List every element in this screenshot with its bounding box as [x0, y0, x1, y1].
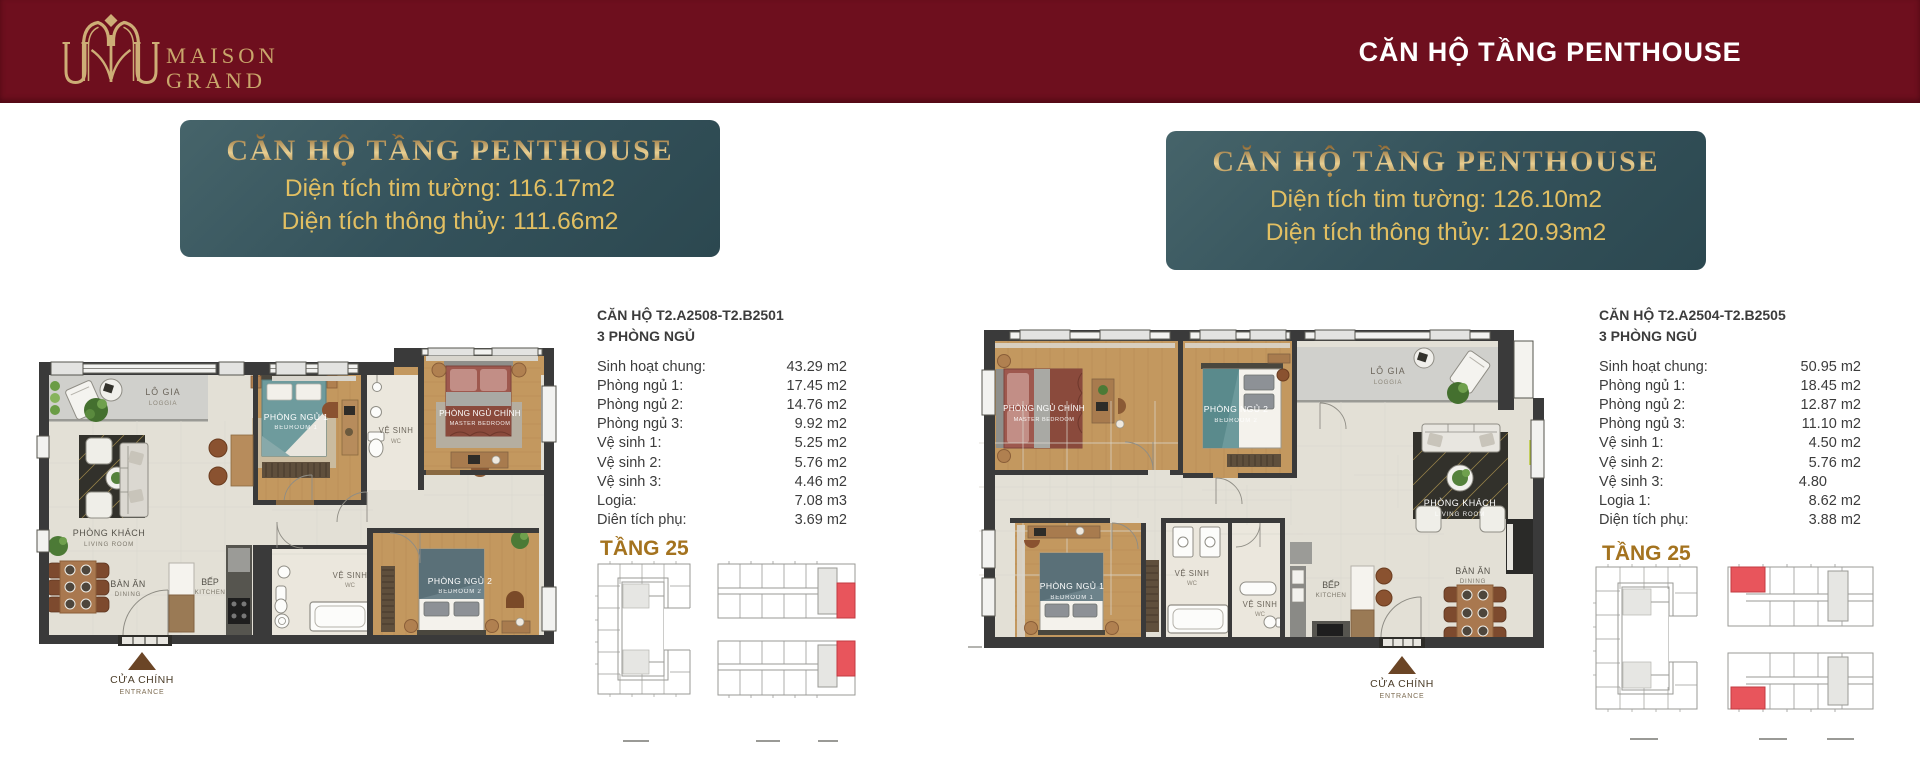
svg-text:CỬA CHÍNH: CỬA CHÍNH: [110, 673, 174, 686]
svg-text:LÔ GIA: LÔ GIA: [145, 387, 180, 397]
svg-text:ENTRANCE: ENTRANCE: [1380, 693, 1425, 700]
svg-text:CỬA CHÍNH: CỬA CHÍNH: [1370, 677, 1434, 690]
svg-text:KITCHEN: KITCHEN: [1316, 592, 1347, 599]
svg-text:PHÒNG NGỦ 2: PHÒNG NGỦ 2: [1204, 403, 1269, 414]
svg-text:ENTRANCE: ENTRANCE: [120, 689, 165, 696]
svg-text:PHÒNG NGỦ CHÍNH: PHÒNG NGỦ CHÍNH: [1003, 402, 1085, 413]
svg-text:BẾP: BẾP: [1322, 580, 1340, 590]
svg-text:DINING: DINING: [115, 591, 141, 598]
svg-text:PHÒNG NGỦ CHÍNH: PHÒNG NGỦ CHÍNH: [439, 407, 521, 418]
svg-text:VỆ SINH: VỆ SINH: [1175, 569, 1210, 578]
svg-text:WC: WC: [345, 583, 356, 589]
svg-text:BEDROOM 2: BEDROOM 2: [438, 589, 481, 595]
svg-text:BEDROOM 2: BEDROOM 2: [1214, 418, 1257, 424]
svg-text:VỆ SINH: VỆ SINH: [379, 426, 414, 435]
svg-text:PHÒNG NGỦ 1: PHÒNG NGỦ 1: [264, 411, 329, 422]
svg-text:LIVING ROOM: LIVING ROOM: [84, 541, 134, 548]
svg-text:VỆ SINH: VỆ SINH: [1243, 600, 1278, 609]
svg-text:MASTER BEDROOM: MASTER BEDROOM: [450, 421, 511, 427]
svg-text:DINING: DINING: [1460, 578, 1486, 585]
svg-text:BẾP: BẾP: [201, 577, 219, 587]
svg-text:BÀN ĂN: BÀN ĂN: [1455, 566, 1490, 576]
svg-text:LOGGIA: LOGGIA: [1374, 379, 1403, 386]
svg-text:PHÒNG NGỦ 2: PHÒNG NGỦ 2: [428, 575, 493, 586]
svg-text:KITCHEN: KITCHEN: [195, 589, 226, 596]
svg-text:BEDROOM 1: BEDROOM 1: [1050, 595, 1093, 601]
svg-text:WC: WC: [391, 439, 402, 445]
svg-text:PHÒNG KHÁCH: PHÒNG KHÁCH: [1424, 498, 1497, 508]
svg-text:WC: WC: [1255, 612, 1266, 618]
svg-text:BEDROOM 1: BEDROOM 1: [274, 425, 317, 431]
svg-text:VỆ SINH: VỆ SINH: [333, 571, 368, 580]
svg-text:WC: WC: [1187, 581, 1198, 587]
svg-text:PHÒNG NGỦ 1: PHÒNG NGỦ 1: [1040, 580, 1105, 591]
svg-text:PHÒNG KHÁCH: PHÒNG KHÁCH: [73, 528, 146, 538]
svg-text:LÔ GIA: LÔ GIA: [1370, 366, 1405, 376]
svg-text:LOGGIA: LOGGIA: [149, 400, 178, 407]
svg-text:LIVING ROOM: LIVING ROOM: [1435, 511, 1485, 518]
svg-text:BÀN ĂN: BÀN ĂN: [110, 579, 145, 589]
